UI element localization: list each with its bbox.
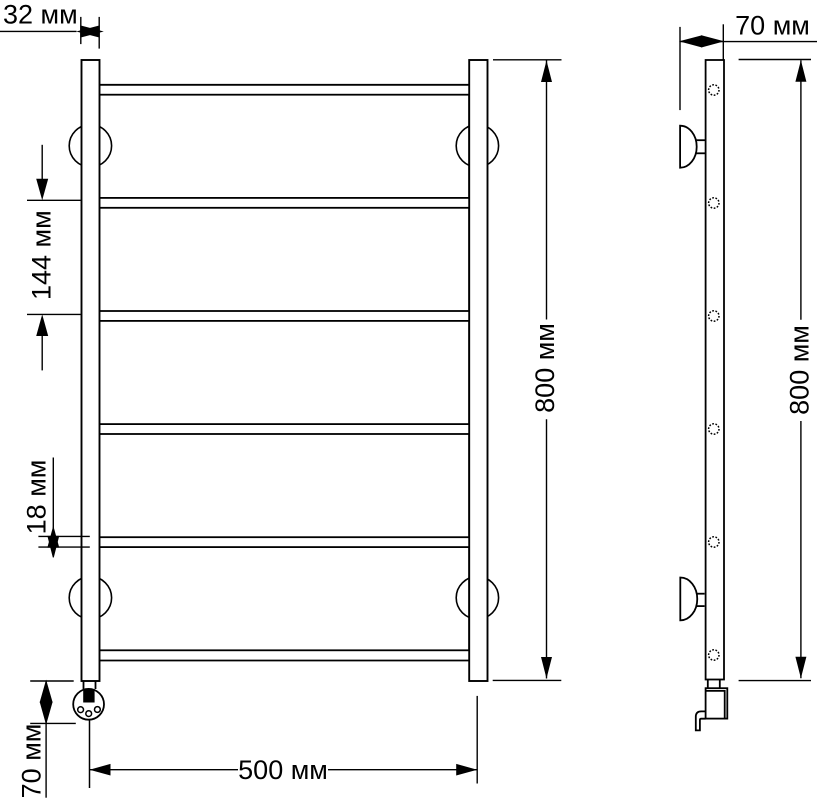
svg-text:70 мм: 70 мм <box>17 724 47 799</box>
svg-text:18 мм: 18 мм <box>22 460 52 535</box>
svg-text:800 мм: 800 мм <box>530 323 560 413</box>
svg-text:144 мм: 144 мм <box>27 210 57 300</box>
svg-text:70 мм: 70 мм <box>735 10 810 40</box>
svg-text:800 мм: 800 мм <box>785 325 815 415</box>
svg-text:32 мм: 32 мм <box>3 0 78 30</box>
svg-text:500 мм: 500 мм <box>238 755 328 785</box>
